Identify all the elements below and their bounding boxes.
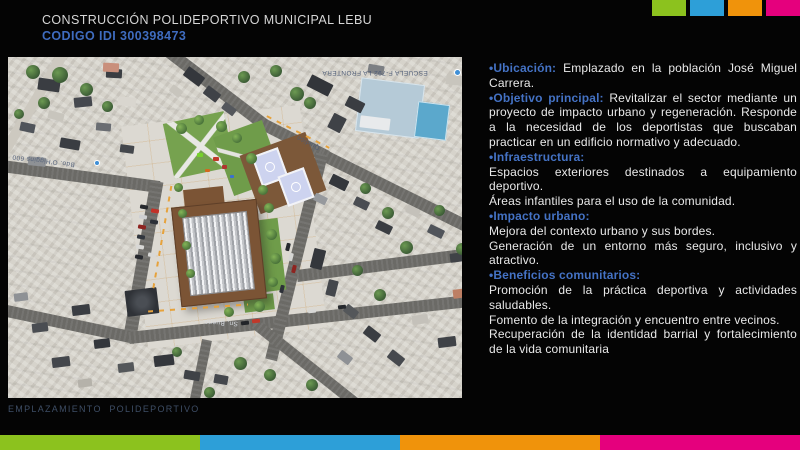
section-label: Impacto urbano: (493, 209, 589, 223)
map-tree (352, 265, 363, 276)
green-square (652, 0, 686, 16)
green-bar (0, 435, 200, 450)
map-road (318, 149, 462, 234)
map-poi-icon (454, 69, 461, 76)
map-tree (52, 67, 68, 83)
map-house (47, 110, 65, 122)
map-tree (102, 101, 113, 112)
map-house (51, 356, 70, 368)
map-tree (400, 241, 413, 254)
section-beneficios-header: •Beneficios comunitarios: (489, 268, 797, 283)
slide: CONSTRUCCIÓN POLIDEPORTIVO MUNICIPAL LEB… (0, 0, 800, 450)
section-ubicacion: •Ubicación: Emplazado en la población Jo… (489, 61, 797, 91)
map-tree (232, 133, 242, 143)
blue-square (690, 0, 724, 16)
map-tree (216, 121, 227, 132)
map-tree (382, 207, 394, 219)
map-label-school: ESCUELA F-792 LA FRONTERA (322, 69, 428, 76)
map-house (153, 354, 174, 367)
playground-item (197, 153, 203, 157)
map-tree (254, 301, 265, 312)
map-house (74, 96, 93, 108)
section-label: Beneficios comunitarios: (493, 268, 640, 282)
map-house (375, 220, 393, 235)
map-house (363, 325, 382, 343)
corner-color-squares (652, 0, 800, 16)
map-tree (182, 241, 191, 250)
map-house (213, 374, 228, 385)
map-tree (224, 307, 234, 317)
map-tree (14, 109, 24, 119)
map-house (78, 378, 93, 388)
map-tree (176, 123, 187, 134)
project-code: CODIGO IDI 300398473 (42, 29, 186, 43)
map-house (96, 122, 112, 131)
section-objetivo: •Objetivo principal: Revitalizar el sect… (489, 91, 797, 150)
section-line: Generación de un entorno más seguro, inc… (489, 239, 797, 269)
map-house (71, 304, 90, 316)
map-house (94, 338, 111, 349)
map-house (327, 113, 347, 134)
playground-item (205, 169, 210, 172)
map-tree (266, 229, 277, 240)
section-line: Áreas infantiles para el uso de la comun… (489, 194, 797, 209)
pink-bar (600, 435, 800, 450)
map-tree (264, 203, 274, 213)
section-line: Promoción de la práctica deportiva y act… (489, 283, 797, 313)
map-tree (374, 289, 386, 301)
map-house (125, 287, 160, 317)
map-house (306, 74, 333, 96)
map-tree (456, 243, 462, 255)
orange-square (728, 0, 762, 16)
map-tree (270, 253, 281, 264)
section-label: Ubicación: (493, 61, 556, 75)
map-house (14, 292, 29, 302)
map-tree (268, 277, 278, 287)
section-infraestructura-header: •Infraestructura: (489, 150, 797, 165)
map-car (308, 309, 316, 314)
section-impacto-header: •Impacto urbano: (489, 209, 797, 224)
map-tree (174, 183, 183, 192)
map-house (103, 63, 119, 73)
map-tree (26, 65, 40, 79)
map-tree (194, 115, 204, 125)
map-tree (246, 153, 257, 164)
map-tree (306, 379, 318, 391)
map-tree (234, 357, 247, 370)
map-house (387, 349, 406, 367)
map-tree (186, 269, 195, 278)
map-house (118, 362, 135, 373)
map-tree (238, 71, 250, 83)
map-poi-icon (94, 160, 100, 166)
map-house (453, 288, 462, 299)
map-car (241, 321, 249, 326)
section-line: Recuperación de la identidad barrial y f… (489, 327, 797, 357)
page-title: CONSTRUCCIÓN POLIDEPORTIVO MUNICIPAL LEB… (42, 13, 372, 27)
map-tree (270, 65, 282, 77)
bottom-color-bar (0, 435, 800, 450)
map-house (59, 137, 80, 150)
court-center-circle (290, 181, 303, 194)
map-tree (264, 369, 276, 381)
blue-bar (200, 435, 400, 450)
map-house (337, 350, 354, 366)
map-tree (172, 347, 182, 357)
section-label: Objetivo principal: (493, 91, 603, 105)
playground-item (230, 175, 234, 178)
map-car (252, 319, 260, 324)
section-label: Infraestructura: (493, 150, 584, 164)
map-house (328, 174, 349, 192)
site-map-image: ESCUELA F-792 LA FRONTERA Bdo. O'Higgins… (8, 57, 462, 398)
map-house (353, 196, 370, 211)
section-line: Mejora del contexto urbano y sus bordes. (489, 224, 797, 239)
map-caption: EMPLAZAMIENTO POLIDEPORTIVO (8, 404, 200, 414)
map-tree (360, 183, 371, 194)
map-house (427, 224, 445, 239)
map-tree (178, 209, 187, 218)
map-tree (38, 97, 50, 109)
map-house (412, 314, 429, 325)
section-line: Fomento de la integración y encuentro en… (489, 313, 797, 328)
map-tree (80, 83, 93, 96)
map-tree (304, 97, 316, 109)
map-house (437, 336, 456, 348)
playground-item (222, 165, 227, 169)
orange-bar (400, 435, 600, 450)
section-line: Espacios exteriores destinados a equipam… (489, 165, 797, 195)
map-house (445, 74, 462, 86)
map-house (183, 370, 200, 382)
map-house (32, 322, 49, 333)
map-house (120, 144, 135, 154)
pink-square (766, 0, 800, 16)
map-house (325, 279, 339, 297)
map-house (118, 96, 137, 107)
map-tree (290, 87, 304, 101)
map-tree (434, 205, 445, 216)
playground-item (213, 157, 219, 161)
court-center-circle (264, 161, 277, 174)
map-tree (204, 387, 215, 398)
gym-metal-roof (182, 211, 255, 296)
map-house (169, 84, 183, 98)
map-car (338, 305, 346, 310)
info-panel: •Ubicación: Emplazado en la población Jo… (489, 61, 797, 357)
school-pool (414, 101, 450, 141)
map-tree (258, 185, 268, 195)
